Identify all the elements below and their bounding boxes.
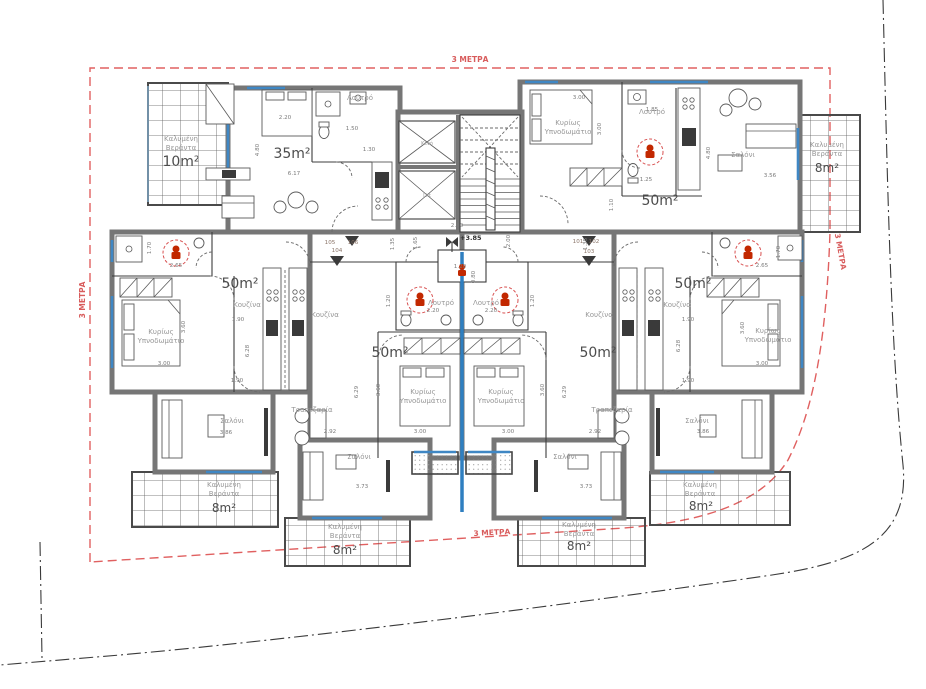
dim: 6.28: [245, 344, 251, 357]
bedroom-label: Κυρίως: [755, 327, 780, 335]
setback-label-right: 3 ΜΕΤΡΑ: [833, 233, 848, 271]
dim: 3.73: [356, 484, 369, 490]
dim: 1.20: [454, 264, 467, 270]
dim: 1.90: [231, 378, 244, 384]
area-studio: 35m²: [273, 146, 310, 162]
area-veranda-8: 8m²: [815, 161, 839, 175]
setback-label-bottom: 3 ΜΕΤΡΑ: [473, 527, 510, 538]
dim: 1.65: [413, 236, 419, 249]
bedroom-label: Κυρίως: [488, 388, 513, 396]
dim: 2.20: [279, 115, 292, 121]
dim: 1.50: [346, 126, 359, 132]
area-apt-right: 50m²: [674, 276, 711, 292]
dim: 1.10: [609, 198, 615, 211]
veranda-label: Βεράντα: [564, 530, 595, 538]
bath-label: Λουτρό: [347, 94, 373, 102]
veranda-label: Καλυμένη: [207, 481, 241, 489]
veranda-label: Βεράντα: [685, 490, 716, 498]
setback-label-left: 3 ΜΕΤΡΑ: [78, 281, 87, 318]
area-veranda-8: 8m²: [689, 499, 713, 513]
dim: 6.29: [562, 385, 568, 398]
dim: 6.29: [354, 385, 360, 398]
kitchen-label: Κουζίνα: [585, 311, 613, 319]
veranda-label: Βεράντα: [166, 144, 197, 152]
unit-number: 102: [589, 239, 600, 245]
dim: 2.20: [485, 308, 498, 314]
bedroom-label: Κυρίως: [410, 388, 435, 396]
living-label: Σαλόνι: [685, 417, 709, 425]
floor-plan-canvas: 3 ΜΕΤΡΑ 3 ΜΕΤΡΑ 3 ΜΕΤΡΑ 3 ΜΕΤΡΑ 10m² 35m…: [0, 0, 926, 689]
unit-number: 106: [348, 240, 359, 246]
living-label: Σαλόνι: [347, 453, 371, 461]
dim: 2.92: [589, 429, 601, 435]
dim: 1.20: [530, 294, 536, 307]
veranda-label: Καλυμένη: [562, 521, 596, 529]
dim: 3.60: [376, 383, 382, 396]
dim: 0.80: [471, 270, 477, 283]
area-apt-cl: 50m²: [371, 345, 408, 361]
kitchen-label: Κουζίνα: [233, 301, 261, 309]
living-label: Σαλόνι: [553, 453, 577, 461]
dim: 3.00: [573, 95, 586, 101]
bath-label: Λουτρό: [473, 299, 499, 307]
veranda-label: Βεράντα: [330, 532, 361, 540]
bedroom-label: Υπνοδωμάτιο: [399, 397, 447, 405]
dim: 3.00: [158, 361, 171, 367]
dim: 1.90: [232, 317, 245, 323]
dim: 3.00: [597, 122, 603, 135]
kitchen-label: Κουζίνα: [311, 311, 339, 319]
area-apt-cr: 50m²: [579, 345, 616, 361]
dim: 2.00: [506, 234, 512, 247]
dim: 3.56: [764, 173, 777, 179]
veranda-label: Καλυμένη: [810, 141, 844, 149]
setback-label-top: 3 ΜΕΤΡΑ: [452, 55, 489, 64]
dim: 2.65: [170, 263, 183, 269]
dim: 1.90: [682, 317, 695, 323]
dim: 1.20: [386, 294, 392, 307]
level-label: +3.85: [460, 234, 482, 242]
dim: 1.90: [682, 378, 695, 384]
area-veranda-8: 8m²: [212, 501, 236, 515]
dim: 1.35: [390, 237, 396, 250]
dim: 3.00: [756, 361, 769, 367]
veranda-label: Καλυμένη: [164, 135, 198, 143]
veranda-label: Καλυμένη: [683, 481, 717, 489]
veranda-label: Βεράντα: [209, 490, 240, 498]
living-label: Σαλόνι: [220, 417, 244, 425]
dim: 1.25: [640, 177, 653, 183]
bedroom-label: Κυρίως: [148, 328, 173, 336]
kitchen-label: Κουζίνα: [663, 301, 691, 309]
veranda-label: Καλυμένη: [328, 523, 362, 531]
bath-label: Λουτρό: [428, 299, 454, 307]
bedroom-label: Υπνοδωμάτιο: [477, 397, 525, 405]
lift-label: Lift: [423, 193, 431, 199]
dim: 2.92: [324, 429, 336, 435]
dim: 3.86: [220, 430, 233, 436]
bedroom-label: Κυρίως: [555, 119, 580, 127]
void-label: Κενό: [421, 140, 433, 147]
staircase: [460, 115, 520, 232]
area-veranda-8: 8m²: [567, 539, 591, 553]
dim: 1.70: [776, 245, 782, 258]
dim: 1.85: [646, 107, 659, 113]
dim: 2.65: [756, 263, 769, 269]
dim: 3.60: [740, 321, 746, 334]
dim: 3.00: [414, 429, 427, 435]
area-apt-tr: 50m²: [641, 193, 678, 209]
dim: 2.60: [451, 223, 464, 229]
bedroom-label: Υπνοδωμάτιο: [544, 128, 592, 136]
dim: 6.28: [676, 339, 682, 352]
dim: 2.20: [427, 308, 440, 314]
dim: 1.35: [583, 237, 589, 250]
floor-plan-drawing: 3 ΜΕΤΡΑ 3 ΜΕΤΡΑ 3 ΜΕΤΡΑ 3 ΜΕΤΡΑ 10m² 35m…: [0, 0, 926, 689]
dim: 4.80: [706, 146, 712, 159]
area-veranda-10: 10m²: [162, 154, 199, 170]
dim: 3.60: [540, 383, 546, 396]
dim: 3.73: [580, 484, 593, 490]
dim: 3.86: [697, 429, 710, 435]
bedroom-label: Υπνοδωμάτιο: [137, 337, 185, 345]
bedroom-label: Υπνοδωμάτιο: [744, 336, 792, 344]
area-veranda-8: 8m²: [333, 543, 357, 557]
dining-label: Τραπεζαρία: [590, 406, 633, 414]
dining-label: Τραπεζαρία: [290, 406, 333, 414]
living-label: Σαλόνι: [731, 151, 755, 159]
dim: 1.30: [363, 147, 376, 153]
veranda-label: Βεράντα: [812, 150, 843, 158]
unit-number: 104: [332, 248, 343, 254]
dim: 4.80: [255, 143, 261, 156]
dim: 3.60: [181, 320, 187, 333]
dim: 1.70: [147, 241, 153, 254]
unit-number: 105: [325, 240, 336, 246]
dim: 6.17: [288, 171, 301, 177]
area-apt-left: 50m²: [221, 276, 258, 292]
dim: 3.00: [502, 429, 515, 435]
